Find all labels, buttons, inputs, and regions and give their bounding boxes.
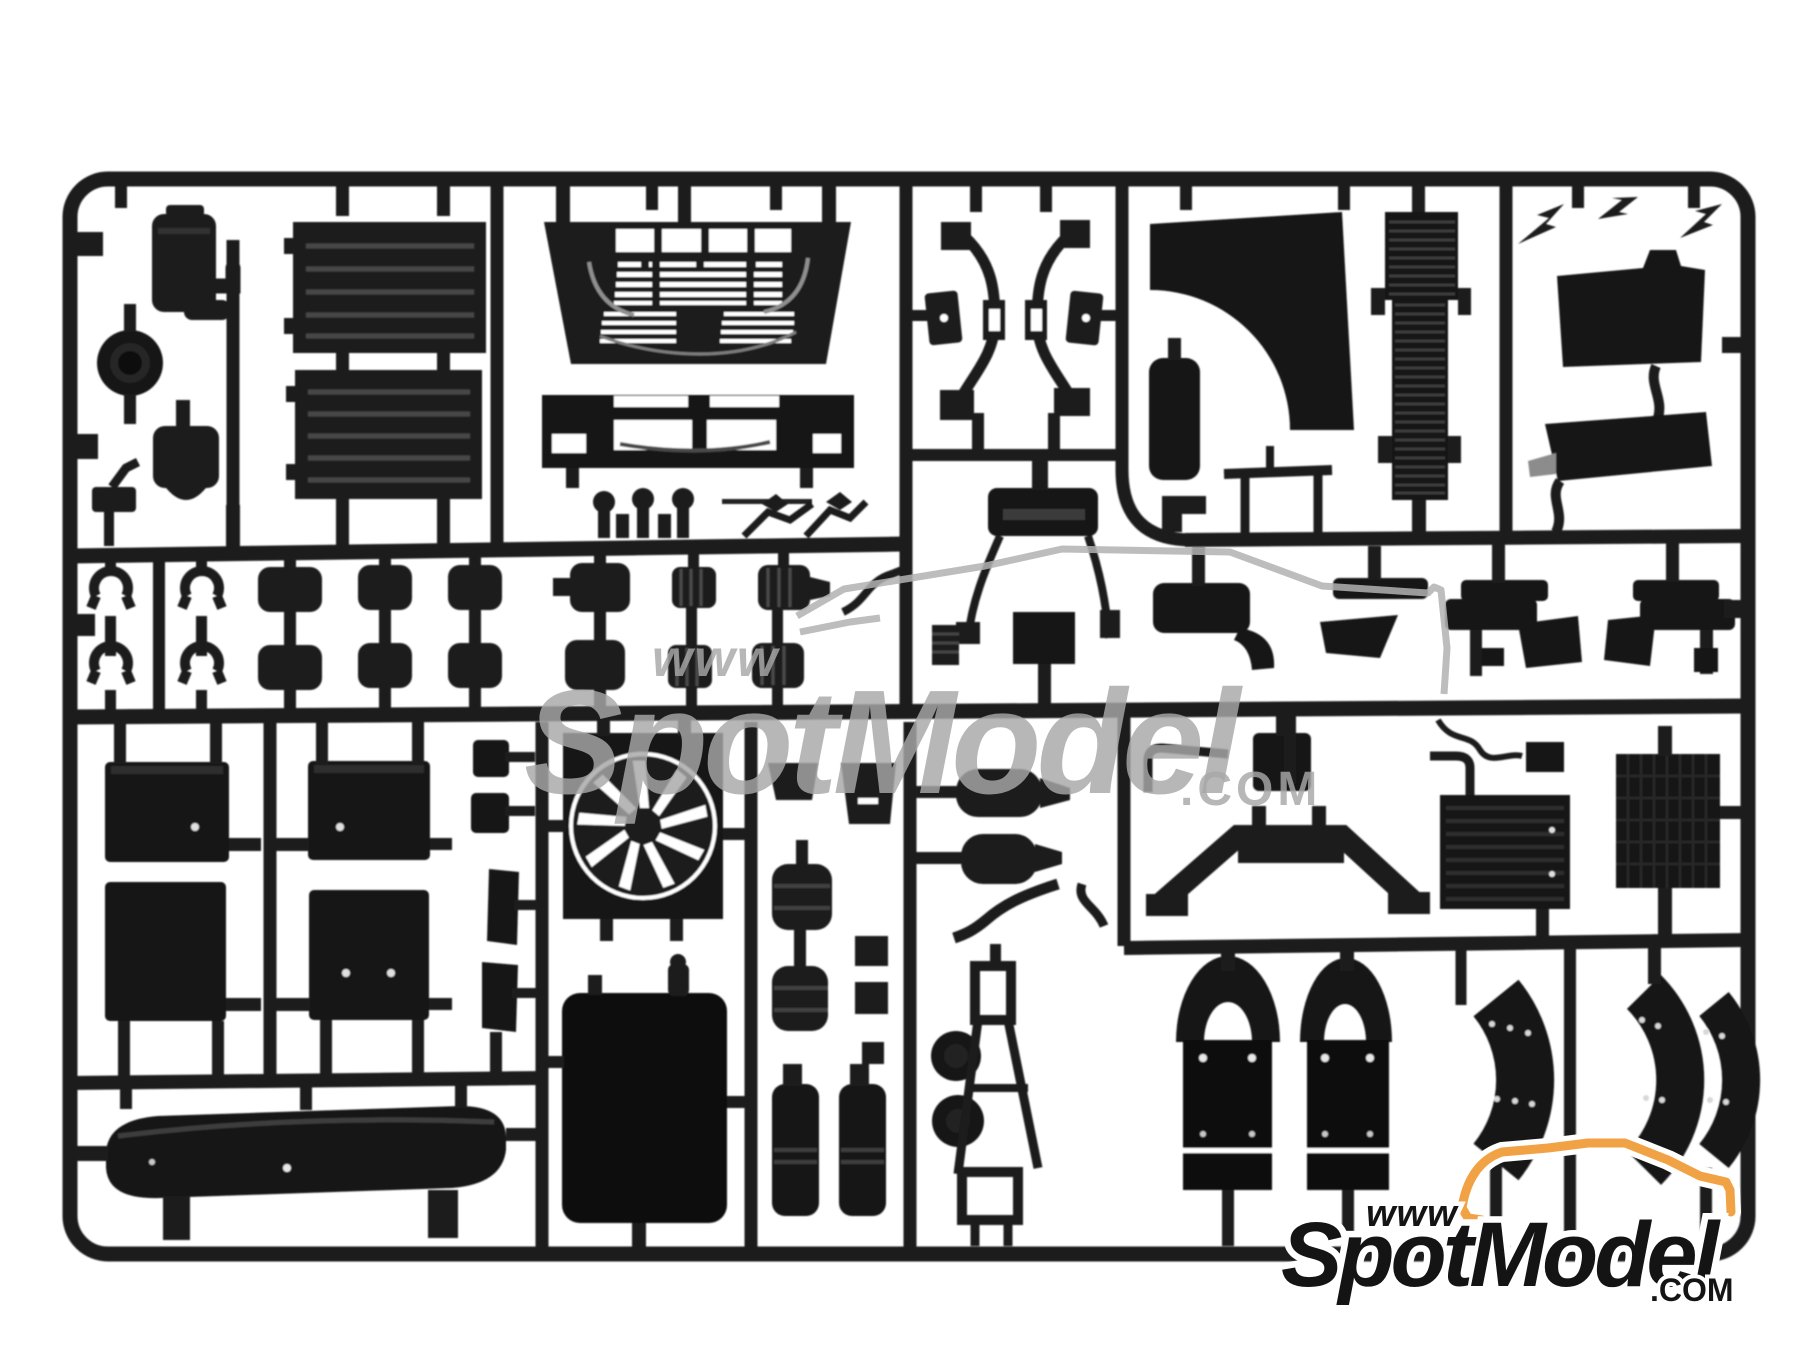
svg-text:.COM: .COM: [1180, 763, 1321, 816]
svg-text:SpotModel: SpotModel: [524, 660, 1243, 825]
svg-text:.COM: .COM: [1650, 1272, 1734, 1308]
